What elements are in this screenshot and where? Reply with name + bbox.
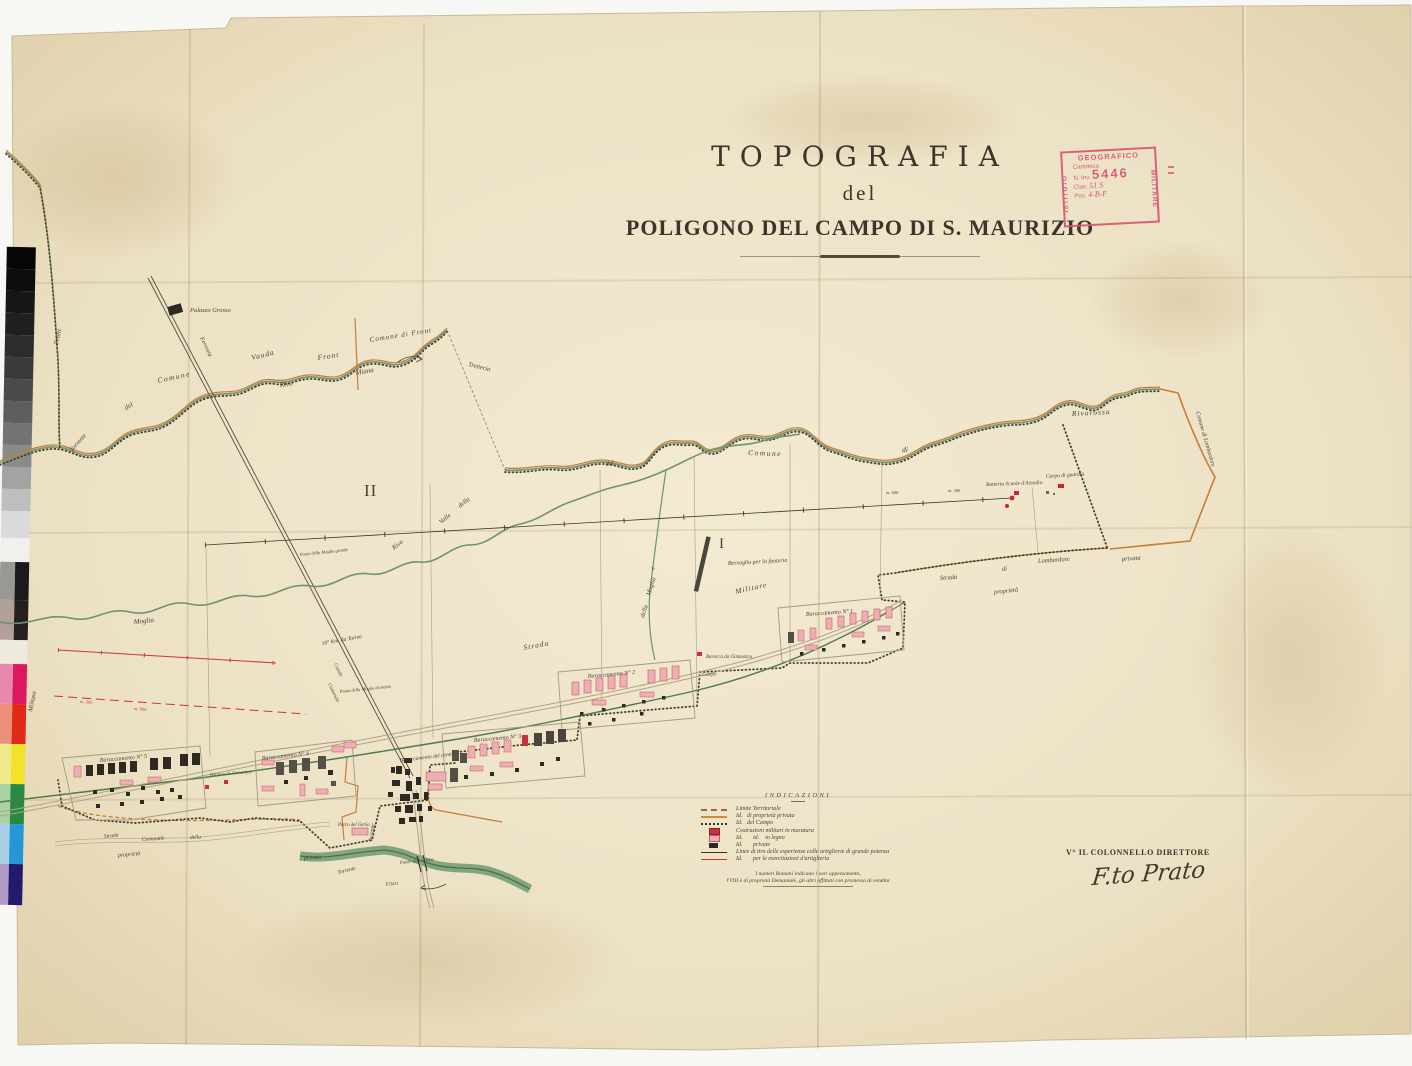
scanned-map-page: Palazzo Grosso Ferrovia Comune del Torre…: [0, 0, 1412, 1066]
parco-genio-building: [352, 828, 368, 835]
legend-heading: INDICAZIONI: [693, 792, 903, 799]
map-label: m. 300: [80, 699, 93, 705]
map-label: privata: [1121, 555, 1141, 563]
guard-post-building: [1058, 484, 1064, 488]
map-label: della: [190, 834, 202, 841]
legend-label: Id. per le esercitazioni d'artiglieria: [736, 856, 829, 863]
stamp-pos-label: Pos.: [1074, 193, 1086, 200]
stamp-inventory-number: 5446: [1092, 165, 1130, 182]
legend-label: Costruzioni militari in muratura: [736, 828, 814, 835]
battery-point: [1005, 504, 1009, 508]
guard-post-mark: [1046, 491, 1049, 494]
private-build-swatch-wrap: [701, 843, 727, 848]
map-label: m. 600: [886, 490, 899, 495]
battery-point: [1010, 496, 1015, 501]
private-line-swatch: [701, 816, 727, 818]
signature-heading: V° IL COLONNELLO DIRETTORE: [1066, 848, 1210, 857]
legend-item-exercise-line: Id. per le esercitazioni d'artiglieria: [693, 856, 983, 863]
legend-item-campo-line: Id. del Campo: [693, 820, 983, 827]
wood-swatch: [709, 835, 720, 842]
guard-post-mark: [1053, 493, 1055, 495]
legend-note-line1: I numeri Romani indicano i vari appezzam…: [693, 871, 923, 878]
legend-note-line2: l'VIII è di proprietà Demaniale, gli alt…: [693, 878, 923, 885]
campo-line-swatch: [701, 823, 727, 825]
territorial-line-swatch: [701, 809, 727, 811]
legend-label: Linee di tiro delle esperienze colle art…: [736, 849, 889, 856]
map-label: m. 600: [134, 706, 147, 712]
map-title: TOPOGRAFIA: [620, 140, 1100, 173]
legend-item-private-line: Id. di proprietà privata: [693, 813, 983, 820]
private-build-swatch: [709, 843, 718, 848]
gymnastics-hut: [697, 652, 702, 656]
signature-block: V° IL COLONNELLO DIRETTORE F.to Prato: [1066, 848, 1210, 887]
masonry-swatch: [709, 828, 720, 835]
legend-item-private-build: Id. private: [693, 842, 983, 849]
legend-note: I numeri Romani indicano i vari appezzam…: [693, 871, 923, 887]
exercise-line-swatch: [701, 859, 727, 860]
map-title-del: del: [620, 181, 1100, 206]
map-label: Rivo: [278, 380, 293, 389]
masonry-swatch-wrap: [701, 828, 727, 835]
plot-numeral: II: [364, 481, 377, 500]
map-subtitle: POLIGONO DEL CAMPO DI S. MAURIZIO: [620, 215, 1100, 241]
map-label: m. 300: [948, 488, 961, 493]
stamp-class-label: Clas.: [1074, 184, 1088, 191]
map-label: Campo: [702, 672, 717, 678]
map-label: Baracca da Ginnastica: [706, 655, 753, 660]
battery-building: [1014, 491, 1019, 495]
legend-note-rule: [763, 886, 853, 887]
legend-label: Id. private: [736, 842, 770, 849]
map-label: Strada: [940, 574, 958, 582]
legend-item-fire-line: Linee di tiro delle esperienze colle art…: [693, 849, 983, 856]
stamp-body: Cartoteca N. Inv. 5446 Clas. 51 S Pos. 4…: [1073, 160, 1147, 201]
legend-block: INDICAZIONI Limite Territoriale Id. di p…: [693, 792, 983, 887]
legend-item-territorial: Limite Territoriale: [693, 806, 983, 813]
map-title-block: TOPOGRAFIA del POLIGONO DEL CAMPO DI S. …: [620, 140, 1100, 258]
stamp-text-right: MILITARE: [1145, 157, 1158, 221]
stamp-ink-marks: [1168, 166, 1176, 180]
plot-numeral: I: [719, 536, 724, 552]
legend-divider: [791, 801, 805, 802]
legend-item-masonry: Costruzioni militari in muratura: [693, 828, 983, 835]
legend-label: Id. di proprietà privata: [736, 813, 794, 820]
map-label: Parco del Genio: [337, 823, 370, 828]
map-label: di: [902, 445, 908, 454]
wood-swatch-wrap: [701, 835, 727, 842]
map-label: Comune: [748, 448, 782, 458]
map-label: del: [605, 460, 614, 468]
map-label: Palazzo Grosso: [189, 307, 232, 314]
legend-label: Limite Territoriale: [736, 806, 781, 813]
title-rule: [780, 255, 940, 258]
legend-label: Id. id. in legno: [736, 835, 785, 842]
legend-item-wood: Id. id. in legno: [693, 835, 983, 842]
fire-line-swatch: [701, 852, 727, 853]
legend-label: Id. del Campo: [736, 820, 773, 827]
director-signature: F.to Prato: [1091, 857, 1211, 891]
map-label: di: [1002, 566, 1008, 573]
stamp-pos-value: 4-B-F: [1088, 189, 1108, 199]
stamp-text-left: ISTITUTO: [1061, 161, 1074, 225]
archive-stamp: GEOGRAFICO ISTITUTO MILITARE Cartoteca N…: [1060, 147, 1160, 228]
